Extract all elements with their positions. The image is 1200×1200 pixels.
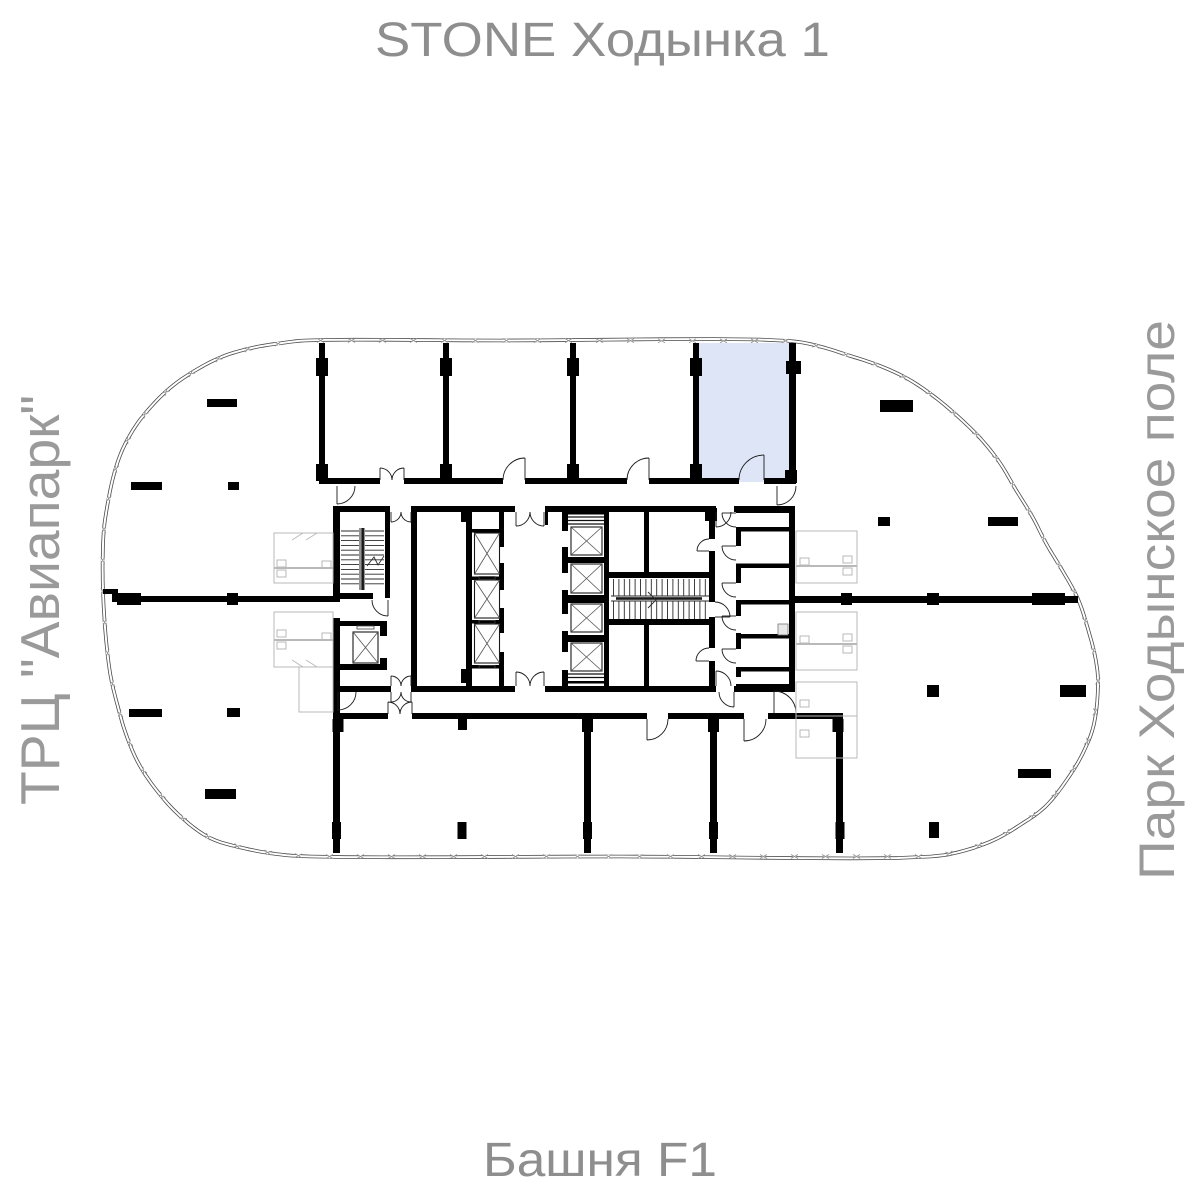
svg-text:ТРЦ "Авиапарк": ТРЦ "Авиапарк"	[9, 395, 71, 805]
svg-text:STONE Ходынка 1: STONE Ходынка 1	[375, 13, 830, 67]
svg-text:Башня F1: Башня F1	[483, 1133, 717, 1187]
svg-text:Парк Ходынское поле: Парк Ходынское поле	[1129, 320, 1185, 880]
